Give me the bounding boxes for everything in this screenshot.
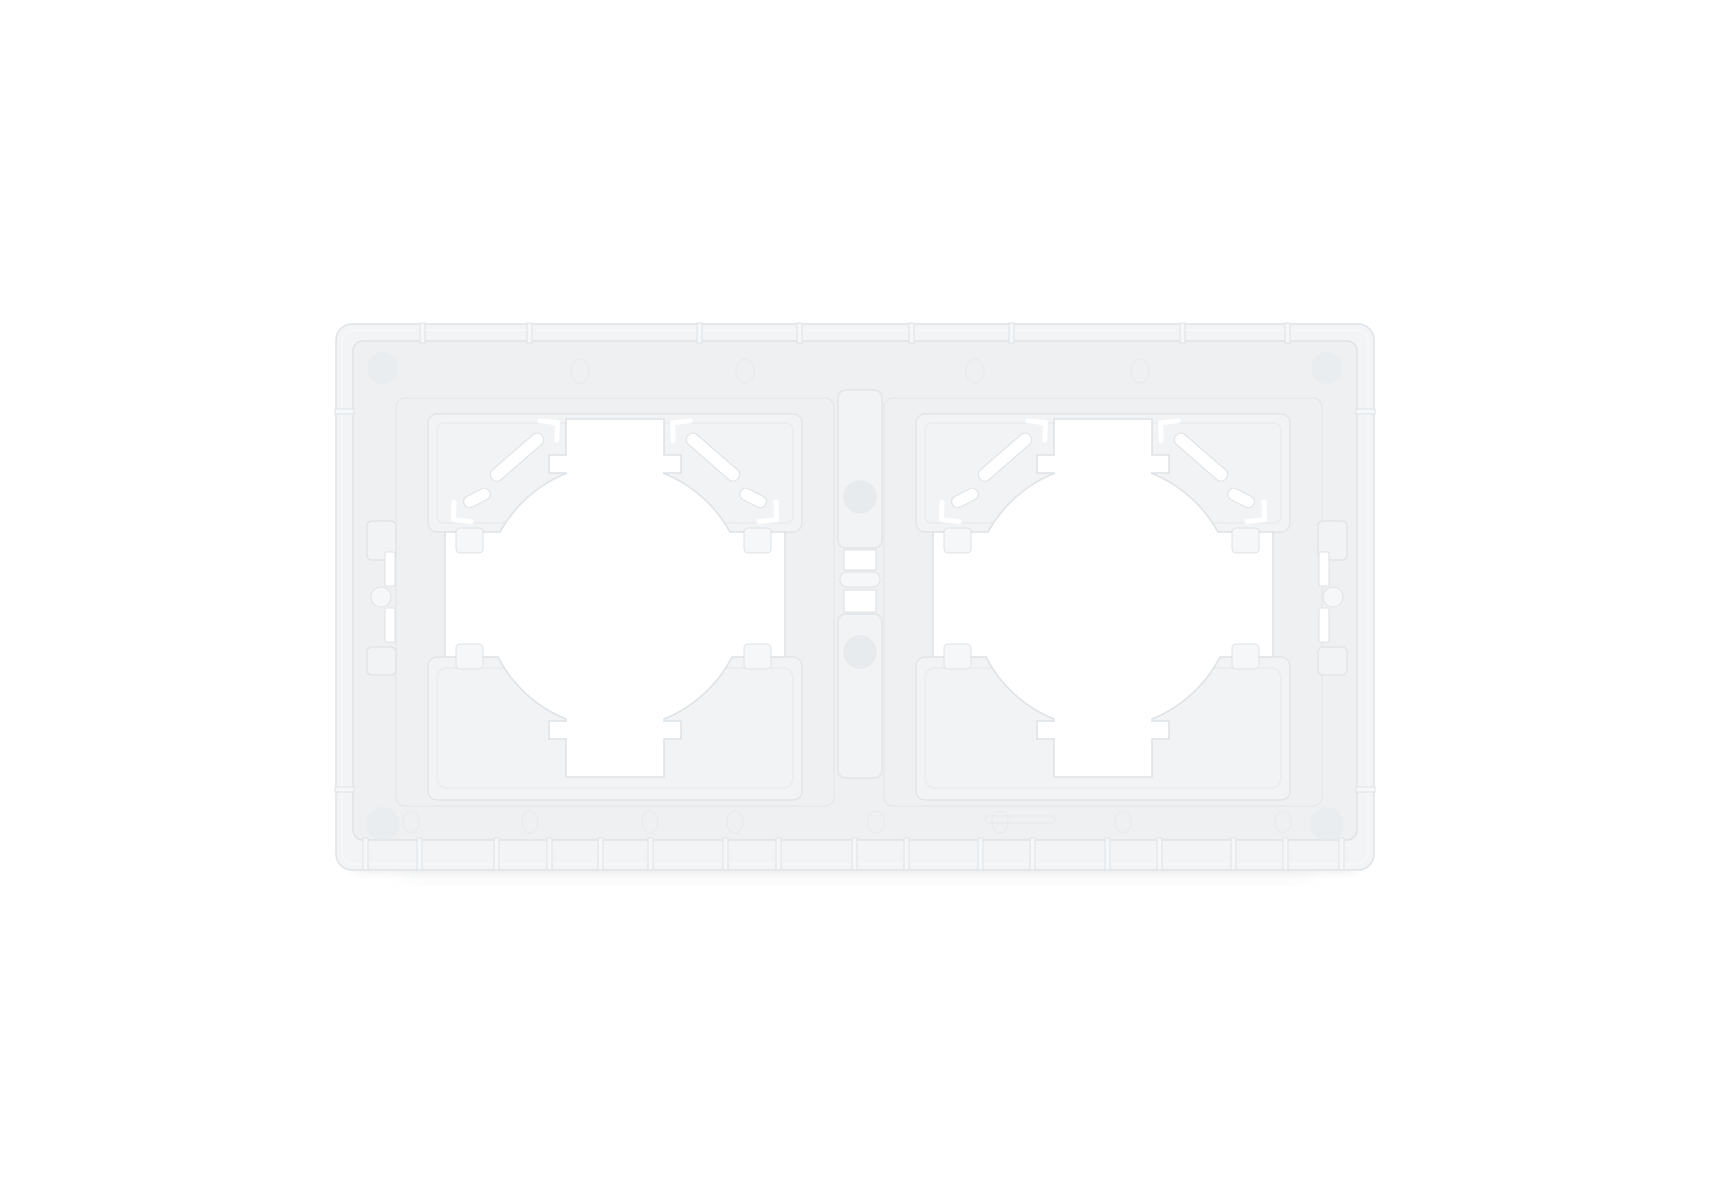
connector-pill <box>840 572 880 587</box>
connector-dimple-lower <box>844 636 876 668</box>
connector-hole-upper <box>844 550 876 570</box>
module-left <box>396 398 834 806</box>
wall-plate-frame-photo <box>0 0 1715 1200</box>
connector-hole-lower <box>844 590 876 612</box>
product-photo <box>0 0 1715 1200</box>
connector-dimple-upper <box>844 481 876 513</box>
center-connector <box>838 390 882 778</box>
connector-tongue-upper <box>838 390 882 548</box>
module-right <box>884 398 1322 806</box>
